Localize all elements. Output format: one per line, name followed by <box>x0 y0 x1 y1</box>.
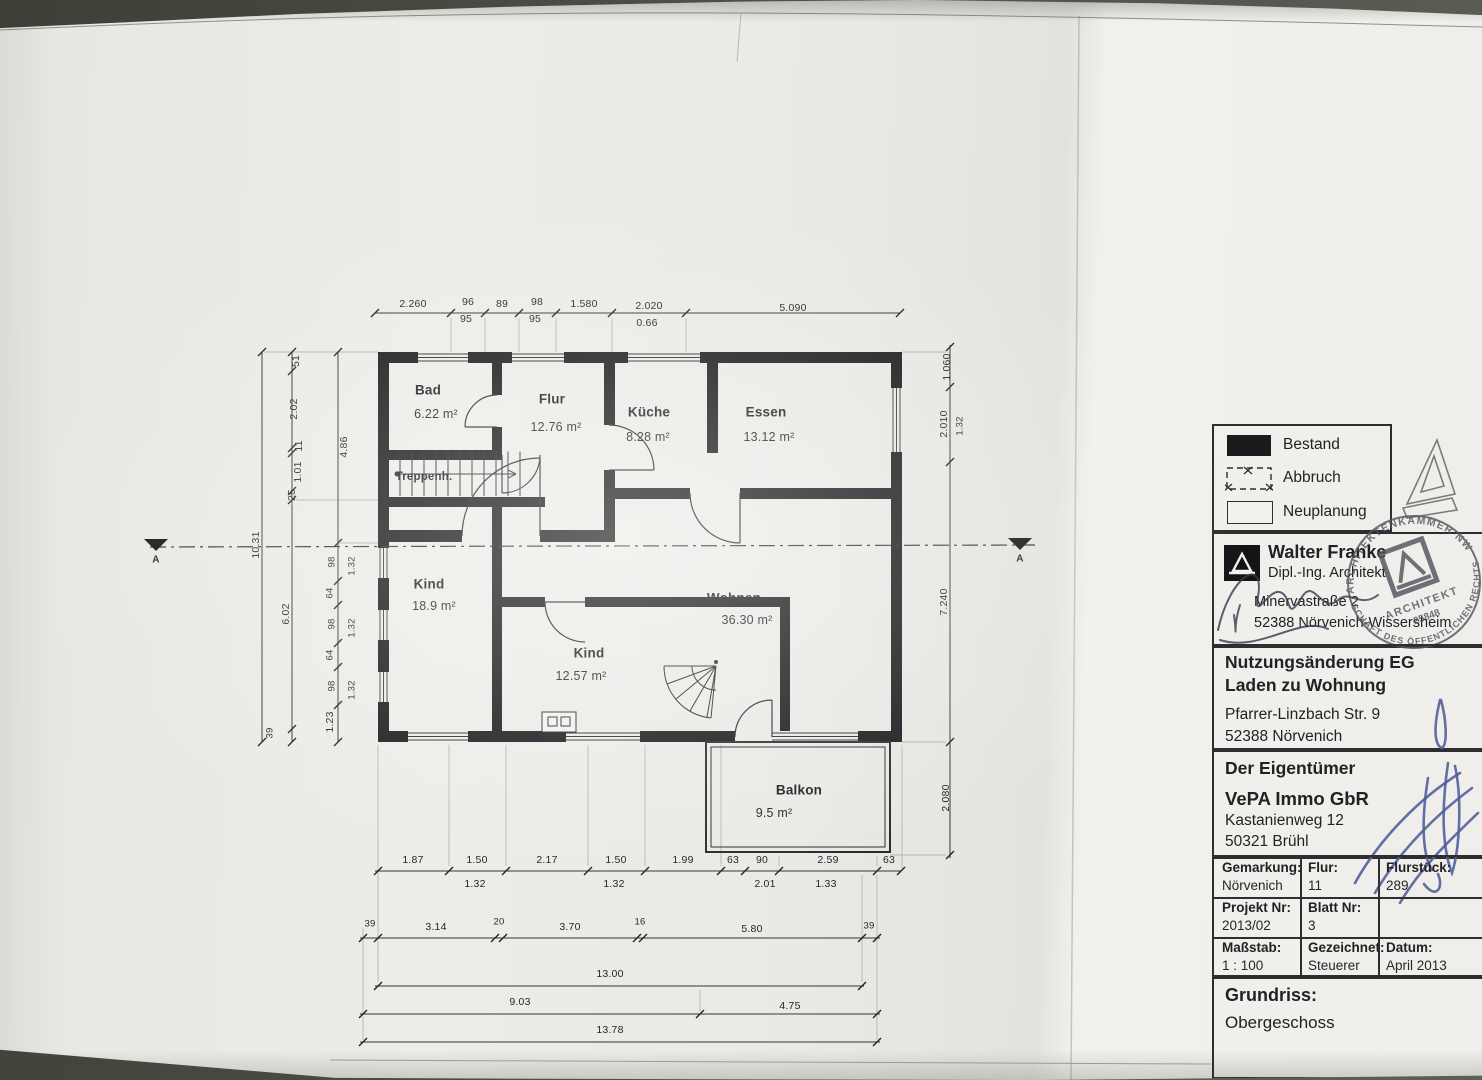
dim-left-label: 6.02 <box>280 603 292 624</box>
owner-heading: Der Eigentümer <box>1225 758 1355 779</box>
room-area-kind1: 18.9 m² <box>412 599 456 613</box>
dim-bottom-label: 63 <box>883 854 895 866</box>
table-cell-value: April 2013 <box>1386 958 1447 973</box>
room-area-flur: 12.76 m² <box>531 420 582 434</box>
dim-right-label: 2.080 <box>940 784 952 811</box>
dim-top-label: 2.020 <box>635 300 662 312</box>
dim-bottom-label: 1.99 <box>672 854 693 866</box>
table-cell-value: 11 <box>1308 878 1322 893</box>
room-area-bad: 6.22 m² <box>414 407 458 421</box>
room-label-flur: Flur <box>539 392 565 407</box>
dim-bottom-label: 20 <box>494 917 505 928</box>
room-area-kueche: 8.28 m² <box>626 430 670 444</box>
table-cell-value: 289 <box>1386 878 1409 893</box>
table-divider <box>1378 857 1380 977</box>
table-cell-label: Maßstab: <box>1222 940 1281 955</box>
legend-symbol-bestand <box>1227 435 1271 456</box>
legend-box: Bestand Abbruch Neuplanung <box>1212 424 1392 532</box>
table-cell-label: Gezeichnet: <box>1308 940 1385 955</box>
room-label-balkon: Balkon <box>776 783 822 798</box>
dim-bottom-label: 1.32 <box>603 878 624 890</box>
dim-bottom-label: 1.33 <box>815 878 836 890</box>
table-divider <box>1214 897 1482 899</box>
dim-bottom-label: 1.32 <box>464 878 485 890</box>
architect-name: Walter Franke <box>1268 542 1386 563</box>
drawing-type-label: Grundriss: <box>1225 985 1317 1006</box>
dim-bottom-label: 4.75 <box>779 1000 800 1012</box>
room-label-bad: Bad <box>415 383 441 398</box>
table-cell-label: Flurstück: <box>1386 860 1451 875</box>
dim-top-label: 5.090 <box>779 302 806 314</box>
table-cell-label: Blatt Nr: <box>1308 900 1361 915</box>
dim-right-label: 1.32 <box>955 416 966 435</box>
table-divider <box>1214 937 1482 939</box>
dim-left-label: 10.31 <box>250 531 262 558</box>
architect-logo-icon <box>1224 545 1260 581</box>
project-box: Nutzungsänderung EG Laden zu Wohnung Pfa… <box>1212 644 1482 752</box>
room-area-balkon: 9.5 m² <box>756 806 793 820</box>
dim-bottom-label: 39 <box>365 919 376 930</box>
dim-top-label: 1.580 <box>570 298 597 310</box>
table-cell-value: 3 <box>1308 918 1316 933</box>
legend-symbol-neuplanung <box>1227 501 1273 524</box>
dim-bottom-label: 1.50 <box>466 854 487 866</box>
dim-left-label: 1.32 <box>347 680 358 699</box>
dim-right-label: 1.060 <box>941 353 953 380</box>
drawing-type-value: Obergeschoss <box>1225 1013 1335 1033</box>
room-label-essen: Essen <box>746 405 787 420</box>
table-cell-label: Gemarkung: <box>1222 860 1302 875</box>
dim-bottom-label: 16 <box>635 917 646 928</box>
dim-left-label: 1.32 <box>347 618 358 637</box>
table-cell-label: Projekt Nr: <box>1222 900 1291 915</box>
architect-street: Minervastraße 2 <box>1254 594 1359 610</box>
dim-left-label: 25 <box>286 489 298 501</box>
room-area-kind2: 12.57 m² <box>556 669 607 683</box>
architect-box: Walter Franke Dipl.-Ing. Architekt Miner… <box>1212 532 1482 648</box>
table-cell-value: Steuerer <box>1308 958 1360 973</box>
drawing-sheet: Bad 6.22 m² Flur 12.76 m² Küche 8.28 m² … <box>0 0 1482 1080</box>
dim-left-label: 51 <box>290 355 302 367</box>
architect-title: Dipl.-Ing. Architekt <box>1268 565 1386 581</box>
legend-label-neuplanung: Neuplanung <box>1283 503 1367 521</box>
project-title-line2: Laden zu Wohnung <box>1225 675 1386 696</box>
dim-bottom-label: 1.50 <box>605 854 626 866</box>
dim-bottom-label: 1.87 <box>402 854 423 866</box>
room-label-kind1: Kind <box>414 577 445 592</box>
room-label-kind2: Kind <box>574 646 605 661</box>
dim-bottom-label: 5.80 <box>741 923 762 935</box>
dim-bottom-label: 39 <box>864 921 875 932</box>
legend-label-bestand: Bestand <box>1283 436 1340 454</box>
dim-top-label: 95 <box>460 313 472 325</box>
dim-bottom-label: 3.70 <box>559 921 580 933</box>
project-street: Pfarrer-Linzbach Str. 9 <box>1225 706 1380 724</box>
architektenkammer-emblem-icon <box>1396 436 1462 522</box>
dim-bottom-label: 2.01 <box>754 878 775 890</box>
dim-bottom-label: 2.17 <box>536 854 557 866</box>
section-marker-label: A <box>1016 554 1023 565</box>
owner-street: Kastanienweg 12 <box>1225 812 1344 830</box>
dim-left-label: 1.32 <box>347 556 358 575</box>
dim-bottom-label: 2.59 <box>817 854 838 866</box>
dim-left-label: 98 <box>327 619 338 630</box>
dim-right-label: 7.240 <box>938 588 950 615</box>
dim-bottom-label: 3.14 <box>425 921 446 933</box>
table-cell-label: Flur: <box>1308 860 1338 875</box>
table-cell-value: 1 : 100 <box>1222 958 1263 973</box>
dim-top-label: 98 <box>531 296 543 308</box>
dim-top-label: 2.260 <box>399 298 426 310</box>
dim-right-label: 2.010 <box>938 410 950 437</box>
project-city: 52388 Nörvenich <box>1225 728 1342 746</box>
owner-box: Der Eigentümer VePA Immo GbR Kastanienwe… <box>1212 748 1482 859</box>
dim-left-label: 1.23 <box>324 711 336 732</box>
table-divider <box>1300 857 1302 977</box>
dim-top-label: 96 <box>462 296 474 308</box>
legend-label-abbruch: Abbruch <box>1283 469 1341 487</box>
table-cell-value: Nörvenich <box>1222 878 1283 893</box>
dim-left-label: 98 <box>327 557 338 568</box>
dim-bottom-label: 13.00 <box>596 968 623 980</box>
room-label-kueche: Küche <box>628 405 670 420</box>
dim-bottom-label: 90 <box>756 854 768 866</box>
dim-left-label: 4.86 <box>338 436 350 457</box>
table-cell-label: Datum: <box>1386 940 1433 955</box>
room-label-wohnen: Wohnen <box>707 591 761 606</box>
table-cell-value: 2013/02 <box>1222 918 1271 933</box>
dim-left-label: 2.02 <box>288 398 300 419</box>
dim-top-label: 95 <box>529 313 541 325</box>
section-marker-label: A <box>152 555 159 566</box>
owner-city: 50321 Brühl <box>1225 833 1309 851</box>
dim-bottom-label: 63 <box>727 854 739 866</box>
dim-top-label: 89 <box>496 298 508 310</box>
dim-left-label: 39 <box>265 728 276 739</box>
dim-left-label: 64 <box>325 588 336 599</box>
drawing-title-box: Grundriss: Obergeschoss <box>1212 975 1482 1079</box>
dim-bottom-label: 13.78 <box>596 1024 623 1036</box>
dim-left-label: 11 <box>293 440 305 451</box>
owner-name: VePA Immo GbR <box>1225 788 1369 810</box>
architect-city: 52388 Nörvenich-Wissersheim <box>1254 615 1451 631</box>
legend-symbol-abbruch <box>1225 466 1273 491</box>
dim-left-label: 1.01 <box>292 461 304 482</box>
dim-top-label: 0.66 <box>636 317 657 329</box>
project-title-line1: Nutzungsänderung EG <box>1225 652 1415 673</box>
dim-left-label: 98 <box>327 681 338 692</box>
dim-bottom-label: 9.03 <box>509 996 530 1008</box>
dim-left-label: 64 <box>325 650 336 661</box>
info-table: Gemarkung: Nörvenich Flur: 11 Flurstück:… <box>1212 855 1482 979</box>
room-area-wohnen: 36.30 m² <box>722 613 773 627</box>
room-area-essen: 13.12 m² <box>744 430 795 444</box>
room-label-treppenhaus: Treppenh. <box>396 471 453 483</box>
